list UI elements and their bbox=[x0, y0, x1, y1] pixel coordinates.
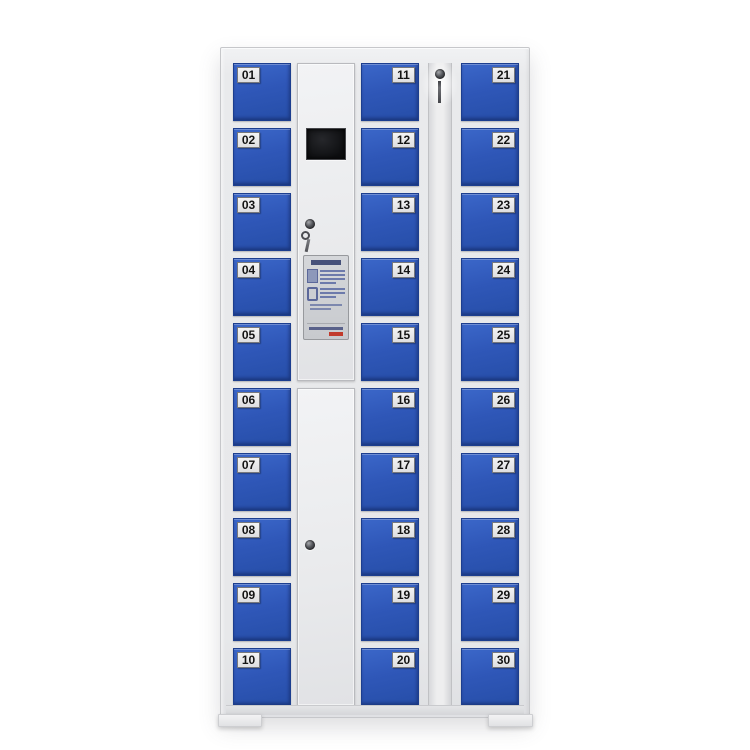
door-number-label: 09 bbox=[237, 587, 260, 603]
locker-door[interactable]: 25 bbox=[461, 323, 519, 381]
locker-cell: 01 bbox=[233, 63, 291, 121]
locker-door[interactable]: 21 bbox=[461, 63, 519, 121]
locker-cell: 11 bbox=[361, 63, 419, 121]
door-number-label: 14 bbox=[392, 262, 415, 278]
locker-cell: 28 bbox=[461, 518, 519, 576]
door-number-label: 23 bbox=[492, 197, 515, 213]
locker-cell: 16 bbox=[361, 388, 419, 446]
locker-door[interactable]: 13 bbox=[361, 193, 419, 251]
door-number-label: 07 bbox=[237, 457, 260, 473]
locker-door[interactable]: 20 bbox=[361, 648, 419, 706]
door-number-label: 04 bbox=[237, 262, 260, 278]
door-number-label: 03 bbox=[237, 197, 260, 213]
cabinet-foot-right bbox=[488, 714, 533, 727]
cabinet-base-kick bbox=[226, 705, 524, 715]
door-number-label: 30 bbox=[492, 652, 515, 668]
locker-cell: 05 bbox=[233, 323, 291, 381]
locker-door[interactable]: 14 bbox=[361, 258, 419, 316]
locker-cell: 14 bbox=[361, 258, 419, 316]
doors-grid: 01 02 03 bbox=[233, 63, 519, 706]
locker-cell: 06 bbox=[233, 388, 291, 446]
locker-door[interactable]: 10 bbox=[233, 648, 291, 706]
sticker-step-2 bbox=[307, 287, 345, 301]
locker-column-middle: 11 12 13 bbox=[361, 63, 419, 706]
locker-cabinet: 01 02 03 bbox=[220, 47, 530, 718]
door-number-label: 16 bbox=[392, 392, 415, 408]
sticker-step-1 bbox=[307, 269, 345, 284]
locker-door[interactable]: 03 bbox=[233, 193, 291, 251]
sticker-note-text bbox=[310, 304, 342, 310]
door-number-label: 20 bbox=[392, 652, 415, 668]
locker-cell: 19 bbox=[361, 583, 419, 641]
door-number-label: 21 bbox=[492, 67, 515, 83]
locker-cell: 22 bbox=[461, 128, 519, 186]
locker-door[interactable]: 06 bbox=[233, 388, 291, 446]
locker-column-left: 01 02 03 bbox=[233, 63, 291, 706]
locker-door[interactable]: 28 bbox=[461, 518, 519, 576]
door-number-label: 25 bbox=[492, 327, 515, 343]
locker-door[interactable]: 07 bbox=[233, 453, 291, 511]
locker-cell: 30 bbox=[461, 648, 519, 706]
door-number-label: 24 bbox=[492, 262, 515, 278]
locker-door[interactable]: 30 bbox=[461, 648, 519, 706]
door-number-label: 13 bbox=[392, 197, 415, 213]
locker-cell: 26 bbox=[461, 388, 519, 446]
locker-door[interactable]: 16 bbox=[361, 388, 419, 446]
hanging-master-key-icon bbox=[438, 81, 441, 103]
locker-door[interactable]: 05 bbox=[233, 323, 291, 381]
locker-cell: 21 bbox=[461, 63, 519, 121]
hanging-key-icon bbox=[305, 239, 311, 252]
door-number-label: 02 bbox=[237, 132, 260, 148]
locker-door[interactable]: 15 bbox=[361, 323, 419, 381]
locker-door[interactable]: 12 bbox=[361, 128, 419, 186]
locker-cell: 29 bbox=[461, 583, 519, 641]
door-number-label: 17 bbox=[392, 457, 415, 473]
door-number-label: 27 bbox=[492, 457, 515, 473]
door-number-label: 22 bbox=[492, 132, 515, 148]
locker-door[interactable]: 04 bbox=[233, 258, 291, 316]
locker-door[interactable]: 11 bbox=[361, 63, 419, 121]
locker-door[interactable]: 18 bbox=[361, 518, 419, 576]
display-screen-icon[interactable] bbox=[306, 128, 346, 160]
locker-cell: 02 bbox=[233, 128, 291, 186]
locker-cell: 03 bbox=[233, 193, 291, 251]
door-number-label: 05 bbox=[237, 327, 260, 343]
locker-door[interactable]: 22 bbox=[461, 128, 519, 186]
instruction-sticker bbox=[303, 255, 349, 340]
locker-cell: 13 bbox=[361, 193, 419, 251]
locker-door[interactable]: 24 bbox=[461, 258, 519, 316]
locker-cell: 08 bbox=[233, 518, 291, 576]
control-column bbox=[297, 63, 355, 706]
sticker-footer bbox=[307, 323, 345, 336]
door-number-label: 06 bbox=[237, 392, 260, 408]
sticker-footer-text bbox=[309, 327, 343, 330]
door-number-label: 19 bbox=[392, 587, 415, 603]
locker-cell: 27 bbox=[461, 453, 519, 511]
door-number-label: 11 bbox=[392, 67, 415, 83]
door-number-label: 12 bbox=[392, 132, 415, 148]
locker-cell: 12 bbox=[361, 128, 419, 186]
red-seal-mark bbox=[329, 332, 343, 336]
door-number-label: 01 bbox=[237, 67, 260, 83]
control-panel-door[interactable] bbox=[297, 63, 355, 381]
door-number-label: 18 bbox=[392, 522, 415, 538]
mobile-phone-icon bbox=[307, 287, 318, 301]
locker-door[interactable]: 01 bbox=[233, 63, 291, 121]
master-key-panel bbox=[425, 63, 455, 706]
locker-door[interactable]: 19 bbox=[361, 583, 419, 641]
sticker-title-text bbox=[311, 260, 341, 265]
card-reader-icon bbox=[307, 269, 318, 283]
locker-product-photo: 01 02 03 bbox=[0, 0, 750, 750]
sticker-step-1-text bbox=[320, 269, 345, 284]
cabinet-foot-left bbox=[218, 714, 262, 727]
locker-cell: 10 bbox=[233, 648, 291, 706]
locker-door[interactable]: 08 bbox=[233, 518, 291, 576]
door-number-label: 08 bbox=[237, 522, 260, 538]
master-key-lock-icon[interactable] bbox=[435, 69, 445, 79]
locker-cell: 15 bbox=[361, 323, 419, 381]
locker-door[interactable]: 17 bbox=[361, 453, 419, 511]
locker-cell: 25 bbox=[461, 323, 519, 381]
locker-cell: 18 bbox=[361, 518, 419, 576]
locker-cell: 23 bbox=[461, 193, 519, 251]
door-number-label: 28 bbox=[492, 522, 515, 538]
locker-door[interactable]: 02 bbox=[233, 128, 291, 186]
key-panel-face bbox=[428, 63, 452, 706]
door-number-label: 10 bbox=[237, 652, 260, 668]
locker-cell: 24 bbox=[461, 258, 519, 316]
key-lock-icon[interactable] bbox=[305, 219, 315, 229]
locker-door[interactable]: 23 bbox=[461, 193, 519, 251]
locker-cell: 04 bbox=[233, 258, 291, 316]
locker-cell: 09 bbox=[233, 583, 291, 641]
door-number-label: 26 bbox=[492, 392, 515, 408]
door-number-label: 29 bbox=[492, 587, 515, 603]
locker-door[interactable]: 27 bbox=[461, 453, 519, 511]
locker-cell: 17 bbox=[361, 453, 419, 511]
locker-door[interactable]: 29 bbox=[461, 583, 519, 641]
locker-column-right: 21 22 23 bbox=[461, 63, 519, 706]
locker-door[interactable]: 26 bbox=[461, 388, 519, 446]
door-number-label: 15 bbox=[392, 327, 415, 343]
cam-lock-icon[interactable] bbox=[305, 540, 315, 550]
lower-service-door[interactable] bbox=[297, 388, 355, 706]
locker-cell: 20 bbox=[361, 648, 419, 706]
sticker-step-2-text bbox=[320, 287, 345, 301]
locker-door[interactable]: 09 bbox=[233, 583, 291, 641]
locker-cell: 07 bbox=[233, 453, 291, 511]
